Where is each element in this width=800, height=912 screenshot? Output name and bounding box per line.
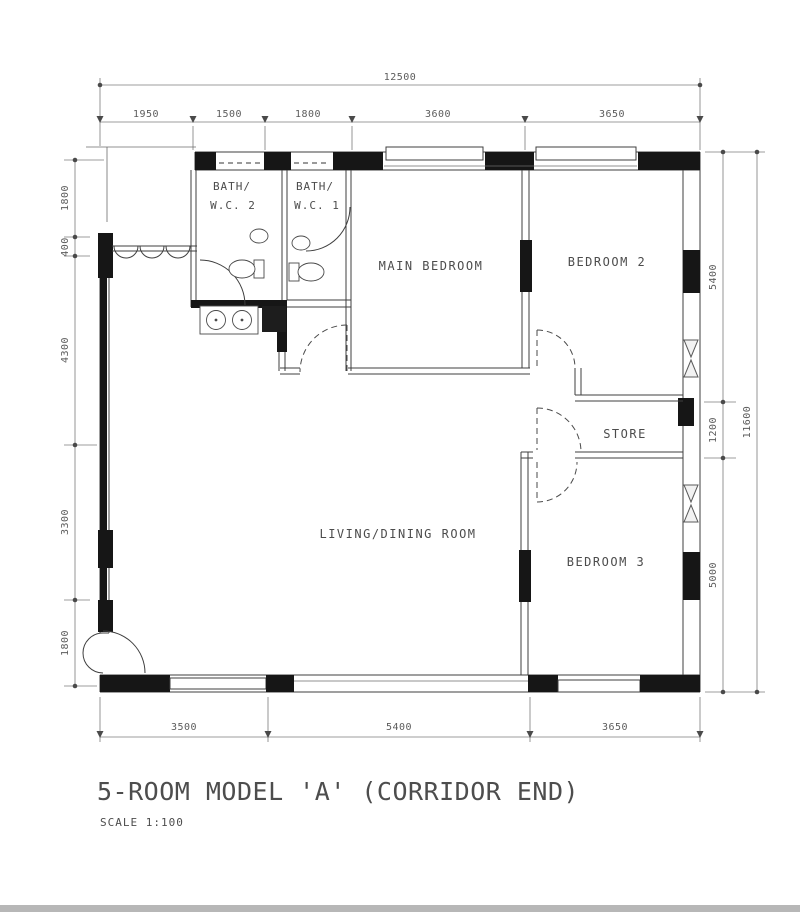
- dim-top-3: 1800: [295, 109, 321, 120]
- label-bedroom2: BEDROOM 2: [568, 255, 647, 269]
- label-store: STORE: [603, 427, 647, 441]
- label-main-bedroom: MAIN BEDROOM: [379, 259, 484, 273]
- kitchen-appliance: [262, 306, 286, 332]
- bath2-basin: [250, 229, 268, 243]
- facade-joint-upper: [684, 340, 698, 377]
- dim-left-3: 4300: [60, 337, 71, 363]
- label-living-dining: LIVING/DINING ROOM: [319, 527, 476, 541]
- dim-top-chain: 1950 1500 1800 3600 3650: [97, 109, 704, 150]
- facade-joint-lower: [684, 485, 698, 522]
- dim-bottom-1: 3500: [171, 722, 197, 733]
- dim-left-chain: 1800 400 4300 3300 1800: [60, 158, 104, 689]
- plan-scale: SCALE 1:100: [100, 816, 184, 829]
- floor-plan-page: 12500 1950 1500 1800 3600 3650 1800 400 …: [0, 0, 800, 912]
- title-block: 5-ROOM MODEL 'A' (CORRIDOR END) SCALE 1:…: [97, 777, 579, 829]
- dim-top-4: 3600: [425, 109, 451, 120]
- dim-left-1: 1800: [60, 185, 71, 211]
- outer-walls: [98, 147, 700, 692]
- plan-title: 5-ROOM MODEL 'A' (CORRIDOR END): [97, 777, 579, 806]
- fixtures: [200, 229, 324, 334]
- bedroom2-door: [537, 330, 575, 368]
- main-entrance-door: [83, 631, 145, 673]
- bath1-door: [306, 207, 350, 251]
- dim-right-2: 1200: [708, 417, 719, 443]
- window-main-bedroom: [386, 147, 483, 160]
- interior-walls: [191, 170, 683, 675]
- dim-right-chain: 5400 1200 5000: [704, 150, 765, 695]
- folding-gate-leaves: [114, 246, 190, 258]
- bedroom3-door: [537, 462, 577, 502]
- bath1-basin: [292, 236, 310, 250]
- dim-right-1: 5400: [708, 264, 719, 290]
- dim-left-4: 3300: [60, 509, 71, 535]
- dim-top-total-value: 12500: [384, 72, 417, 83]
- main-bedroom-door: [300, 325, 347, 372]
- window-bedroom3: [558, 680, 640, 692]
- store-door: [537, 408, 581, 452]
- bath2-wc: [229, 260, 264, 278]
- dim-top-1: 1950: [133, 109, 159, 120]
- dim-left-5: 1800: [60, 630, 71, 656]
- dim-right-total-value: 11600: [742, 406, 753, 439]
- bath1-wc: [289, 263, 324, 281]
- label-bath1-line1: BATH/: [296, 180, 334, 193]
- label-bath2-line2: W.C. 2: [210, 199, 256, 212]
- image-bottom-border: [0, 905, 800, 912]
- window-bedroom2: [536, 147, 636, 160]
- floor-plan-drawing: 12500 1950 1500 1800 3600 3650 1800 400 …: [0, 0, 800, 912]
- dim-bottom-chain: 3500 5400 3650: [97, 697, 704, 742]
- dim-right-total: 11600: [742, 150, 759, 695]
- label-bath2-line1: BATH/: [213, 180, 251, 193]
- dim-bottom-2: 5400: [386, 722, 412, 733]
- label-bedroom3: BEDROOM 3: [567, 555, 646, 569]
- dim-top-5: 3650: [599, 109, 625, 120]
- window-living-left: [170, 678, 266, 689]
- dim-top-2: 1500: [216, 109, 242, 120]
- dim-right-3: 5000: [708, 562, 719, 588]
- dim-left-2: 400: [60, 237, 71, 257]
- kitchen-sink-counter: [200, 306, 258, 334]
- dim-bottom-3: 3650: [602, 722, 628, 733]
- label-bath1-line2: W.C. 1: [294, 199, 340, 212]
